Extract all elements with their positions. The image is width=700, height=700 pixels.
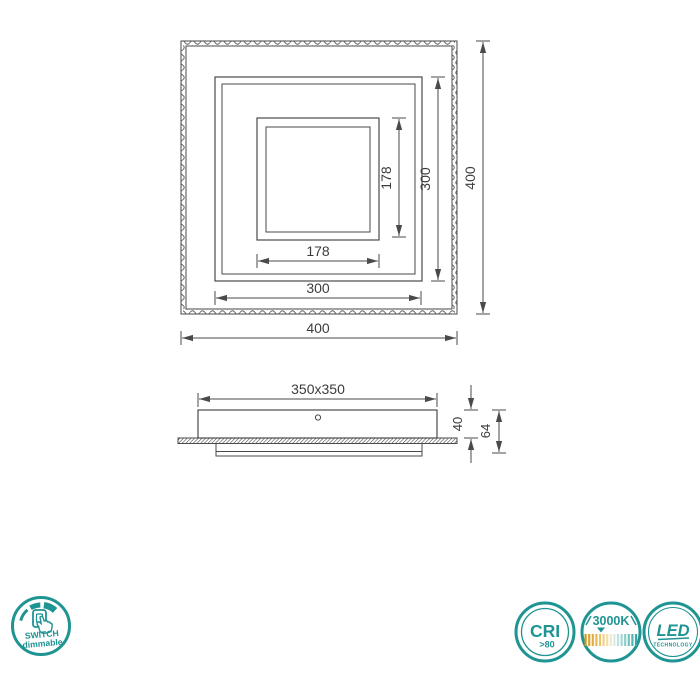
switch-dimmable-badge: SWITCH dimmable xyxy=(13,598,70,655)
outer-frame-inner-line xyxy=(186,46,452,309)
kelvin-badge-title: 3000K xyxy=(593,614,630,628)
inner-square-outline xyxy=(257,118,379,240)
badge-text-group: SWITCH dimmable xyxy=(21,628,63,650)
dim-label-body-height: 40 xyxy=(450,417,465,431)
cri-badge-title: CRI xyxy=(530,621,560,641)
led-technology-badge: LED TECHNOLOGY xyxy=(644,603,700,661)
inner-square-inner-line xyxy=(266,127,370,232)
product-dimension-sheet: 178 300 400 178 300 400 350x350 xyxy=(0,0,700,700)
dim-label-base: 350x350 xyxy=(291,381,345,397)
ornament-border-bottom xyxy=(183,309,455,314)
lamp-diffuser-profile xyxy=(216,444,422,457)
cri-badge-value: >80 xyxy=(539,640,554,650)
dim-label-inner-width: 178 xyxy=(306,243,330,259)
cri-badge: CRI >80 xyxy=(516,603,574,661)
top-view-drawing: 178 300 400 178 300 400 xyxy=(181,41,490,345)
ornament-border-left xyxy=(181,46,186,309)
technical-drawing-canvas: 178 300 400 178 300 400 350x350 xyxy=(0,0,700,700)
badge-ring xyxy=(582,603,640,661)
dim-label-total-height: 64 xyxy=(478,424,493,438)
led-badge-title: LED xyxy=(657,622,690,640)
ornament-border-right xyxy=(452,46,457,309)
dim-label-inner-height: 178 xyxy=(378,166,394,190)
ornament-border-top xyxy=(183,41,455,46)
mounting-hole xyxy=(315,415,320,420)
lamp-panel-profile xyxy=(178,438,457,444)
color-temperature-badge: 3000K xyxy=(582,603,640,661)
lamp-body-profile xyxy=(198,410,437,438)
dim-label-middle-height: 300 xyxy=(417,167,433,191)
color-temperature-spectrum-bars xyxy=(585,634,638,646)
dim-label-middle-width: 300 xyxy=(306,280,330,296)
side-view-drawing: 350x350 40 64 xyxy=(178,381,506,463)
led-badge-subtitle: TECHNOLOGY xyxy=(653,643,693,649)
dim-label-outer-height: 400 xyxy=(462,166,478,190)
dim-label-outer-width: 400 xyxy=(306,320,330,336)
